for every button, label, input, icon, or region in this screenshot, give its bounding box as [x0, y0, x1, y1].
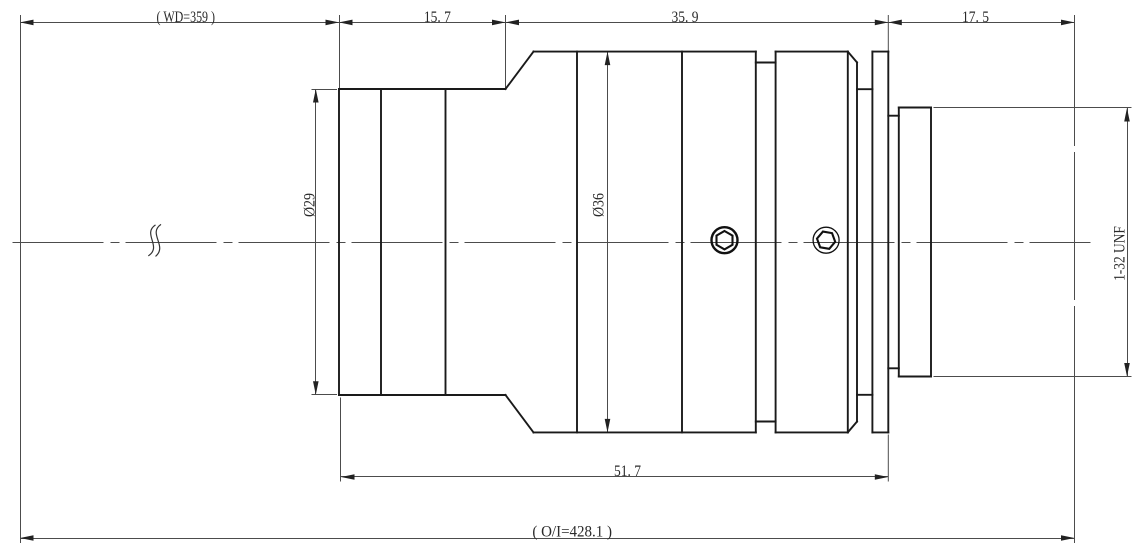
svg-text:1-32 UNF: 1-32 UNF — [1112, 226, 1129, 281]
svg-text:35. 9: 35. 9 — [672, 9, 699, 26]
svg-text:15. 7: 15. 7 — [424, 9, 451, 26]
svg-text:17. 5: 17. 5 — [962, 9, 989, 26]
svg-text:( O/I=428.1 ): ( O/I=428.1 ) — [532, 524, 612, 541]
svg-text:Ø29: Ø29 — [302, 193, 319, 217]
svg-text:( WD=359 ): ( WD=359 ) — [157, 9, 216, 26]
svg-text:Ø36: Ø36 — [591, 193, 608, 217]
svg-text:51. 7: 51. 7 — [614, 463, 641, 480]
